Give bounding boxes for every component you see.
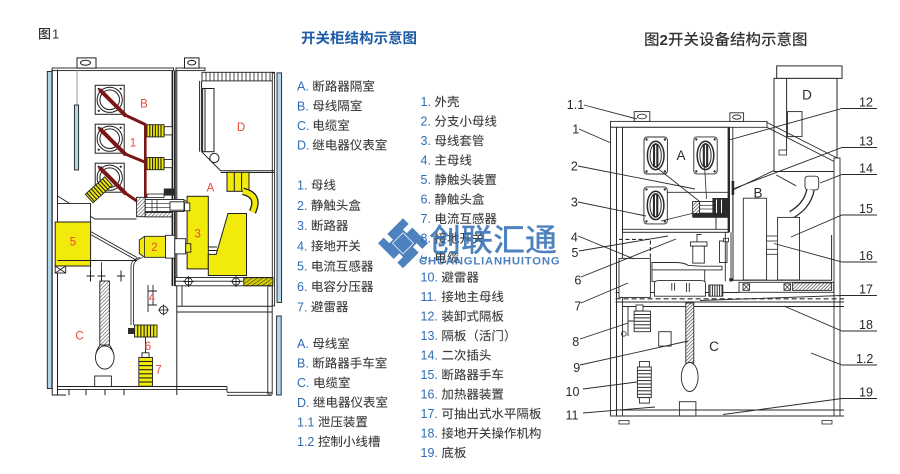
svg-text:16.: 16. xyxy=(421,388,438,402)
svg-text:18: 18 xyxy=(859,318,873,332)
svg-text:2: 2 xyxy=(571,160,578,174)
svg-text:7: 7 xyxy=(574,300,581,314)
svg-text:10: 10 xyxy=(566,385,580,399)
svg-text:B: B xyxy=(140,99,148,111)
svg-text:A: A xyxy=(207,182,215,194)
svg-text:A.: A. xyxy=(297,80,309,94)
svg-text:5.: 5. xyxy=(421,173,431,187)
svg-text:3.: 3. xyxy=(421,134,431,148)
svg-text:16: 16 xyxy=(859,249,873,263)
svg-text:5: 5 xyxy=(70,237,76,249)
svg-text:15.: 15. xyxy=(421,368,438,382)
svg-text:13: 13 xyxy=(859,135,873,149)
svg-text:5: 5 xyxy=(572,246,579,260)
svg-text:12.: 12. xyxy=(421,310,438,324)
svg-text:B.: B. xyxy=(297,357,309,371)
svg-text:2: 2 xyxy=(660,32,668,49)
svg-text:7.: 7. xyxy=(421,212,431,226)
svg-text:C: C xyxy=(75,331,83,343)
svg-text:D: D xyxy=(802,88,812,103)
svg-text:6.: 6. xyxy=(297,280,307,294)
svg-text:1: 1 xyxy=(130,138,136,150)
svg-text:19: 19 xyxy=(859,386,873,400)
svg-text:14.: 14. xyxy=(421,349,438,363)
svg-text:B: B xyxy=(753,186,762,201)
svg-text:9: 9 xyxy=(573,361,580,375)
svg-text:7.: 7. xyxy=(297,300,307,314)
svg-text:6.: 6. xyxy=(421,193,431,207)
svg-text:5.: 5. xyxy=(297,260,307,274)
svg-text:2.: 2. xyxy=(297,199,307,213)
svg-text:17: 17 xyxy=(859,283,873,297)
svg-text:1.: 1. xyxy=(421,95,431,109)
svg-text:12: 12 xyxy=(859,96,873,110)
svg-text:2.: 2. xyxy=(421,115,431,129)
svg-text:3: 3 xyxy=(194,229,200,241)
svg-text:10.: 10. xyxy=(421,271,438,285)
svg-text:1.: 1. xyxy=(297,179,307,193)
svg-text:C: C xyxy=(709,339,719,354)
svg-text:11: 11 xyxy=(566,408,579,422)
svg-text:1: 1 xyxy=(572,123,579,137)
svg-text:6: 6 xyxy=(574,274,581,288)
svg-text:3.: 3. xyxy=(297,219,307,233)
svg-text:4: 4 xyxy=(149,293,156,305)
svg-text:D.: D. xyxy=(297,139,310,153)
svg-text:11.: 11. xyxy=(421,290,437,304)
svg-text:4.: 4. xyxy=(297,239,307,253)
svg-text:CHUANGLIANHUITONG: CHUANGLIANHUITONG xyxy=(419,256,560,268)
svg-text:A: A xyxy=(676,148,685,163)
svg-text:D: D xyxy=(237,122,245,134)
svg-text:1: 1 xyxy=(52,26,59,41)
svg-text:A.: A. xyxy=(297,337,309,351)
svg-text:B.: B. xyxy=(297,99,309,113)
svg-text:C.: C. xyxy=(297,376,310,390)
svg-text:1.2: 1.2 xyxy=(297,435,314,449)
svg-text:7: 7 xyxy=(155,365,161,377)
svg-text:4: 4 xyxy=(571,231,578,245)
svg-text:15: 15 xyxy=(859,202,873,216)
svg-text:C.: C. xyxy=(297,119,310,133)
svg-text:17.: 17. xyxy=(421,407,438,421)
svg-text:13.: 13. xyxy=(421,329,438,343)
svg-text:19.: 19. xyxy=(421,446,438,460)
svg-text:2: 2 xyxy=(151,242,157,254)
svg-text:18.: 18. xyxy=(421,427,438,441)
svg-text:3: 3 xyxy=(571,196,578,210)
svg-text:4.: 4. xyxy=(421,154,431,168)
svg-text:1.2: 1.2 xyxy=(856,352,873,366)
svg-text:14: 14 xyxy=(859,162,873,176)
svg-text:6: 6 xyxy=(145,341,151,353)
svg-text:8: 8 xyxy=(572,335,579,349)
svg-text:D.: D. xyxy=(297,396,310,410)
svg-text:1.1: 1.1 xyxy=(297,415,314,429)
svg-text:1.1: 1.1 xyxy=(567,98,584,112)
